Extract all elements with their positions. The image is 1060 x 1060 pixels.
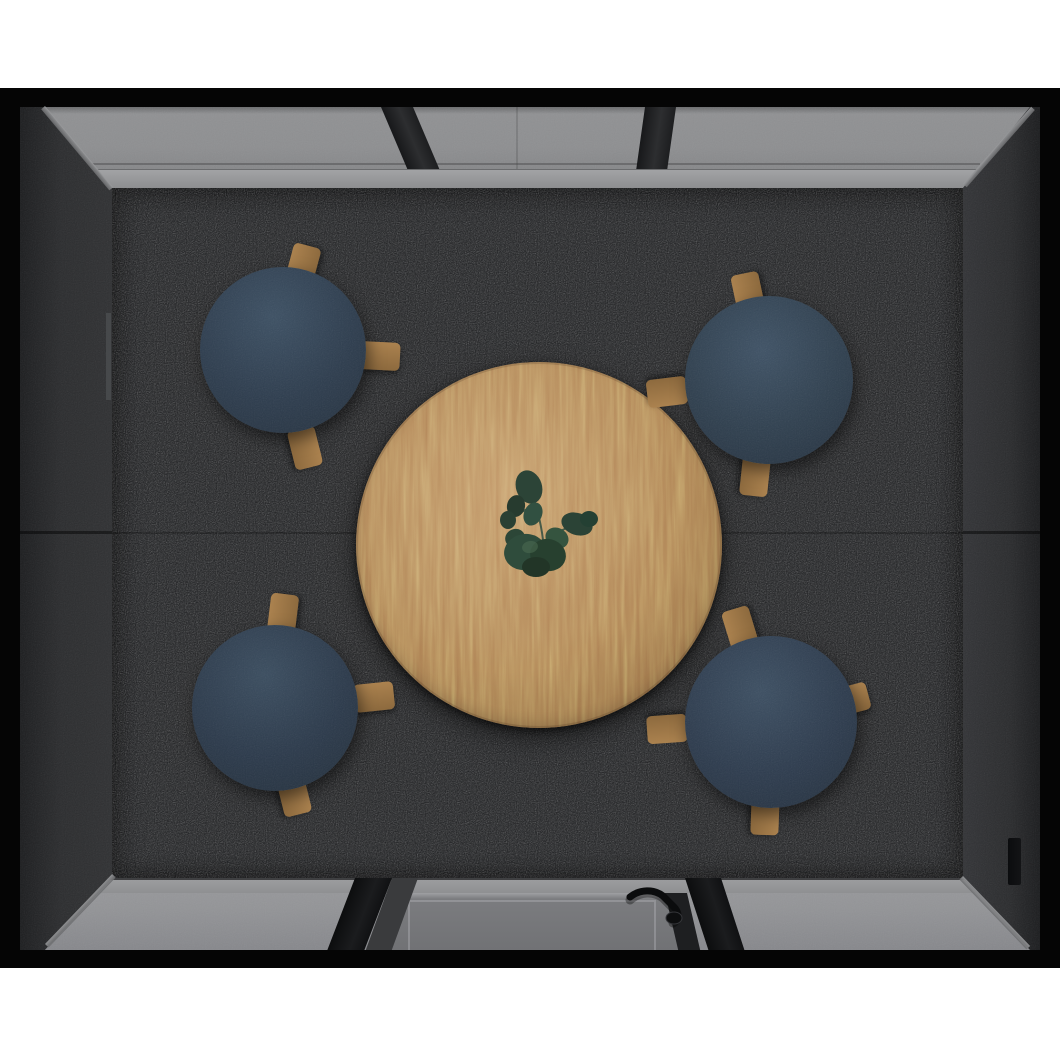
rear-glass-wall (20, 107, 1040, 188)
wall-felt-texture (20, 107, 112, 950)
plant-leaves (500, 467, 598, 577)
left-wall-hinge-strip (106, 313, 111, 400)
wall-felt-texture (963, 107, 1040, 950)
left-wall-panel (20, 107, 112, 950)
right-wall-vent-slot (1008, 838, 1021, 885)
glass-bottom-edge (80, 163, 980, 165)
door-handle (616, 884, 706, 934)
glass-panel-joint (516, 107, 518, 169)
front-glass-wall (20, 878, 1040, 950)
front-wall-sill (60, 878, 1000, 893)
right-wall-seam (963, 531, 1040, 534)
pod-render-stage (0, 0, 1060, 1060)
handle-rosette (666, 912, 682, 924)
rear-wall-sill (62, 169, 998, 188)
right-wall-panel (963, 107, 1040, 950)
eucalyptus-plant (485, 462, 605, 587)
left-wall-seam (20, 531, 112, 534)
